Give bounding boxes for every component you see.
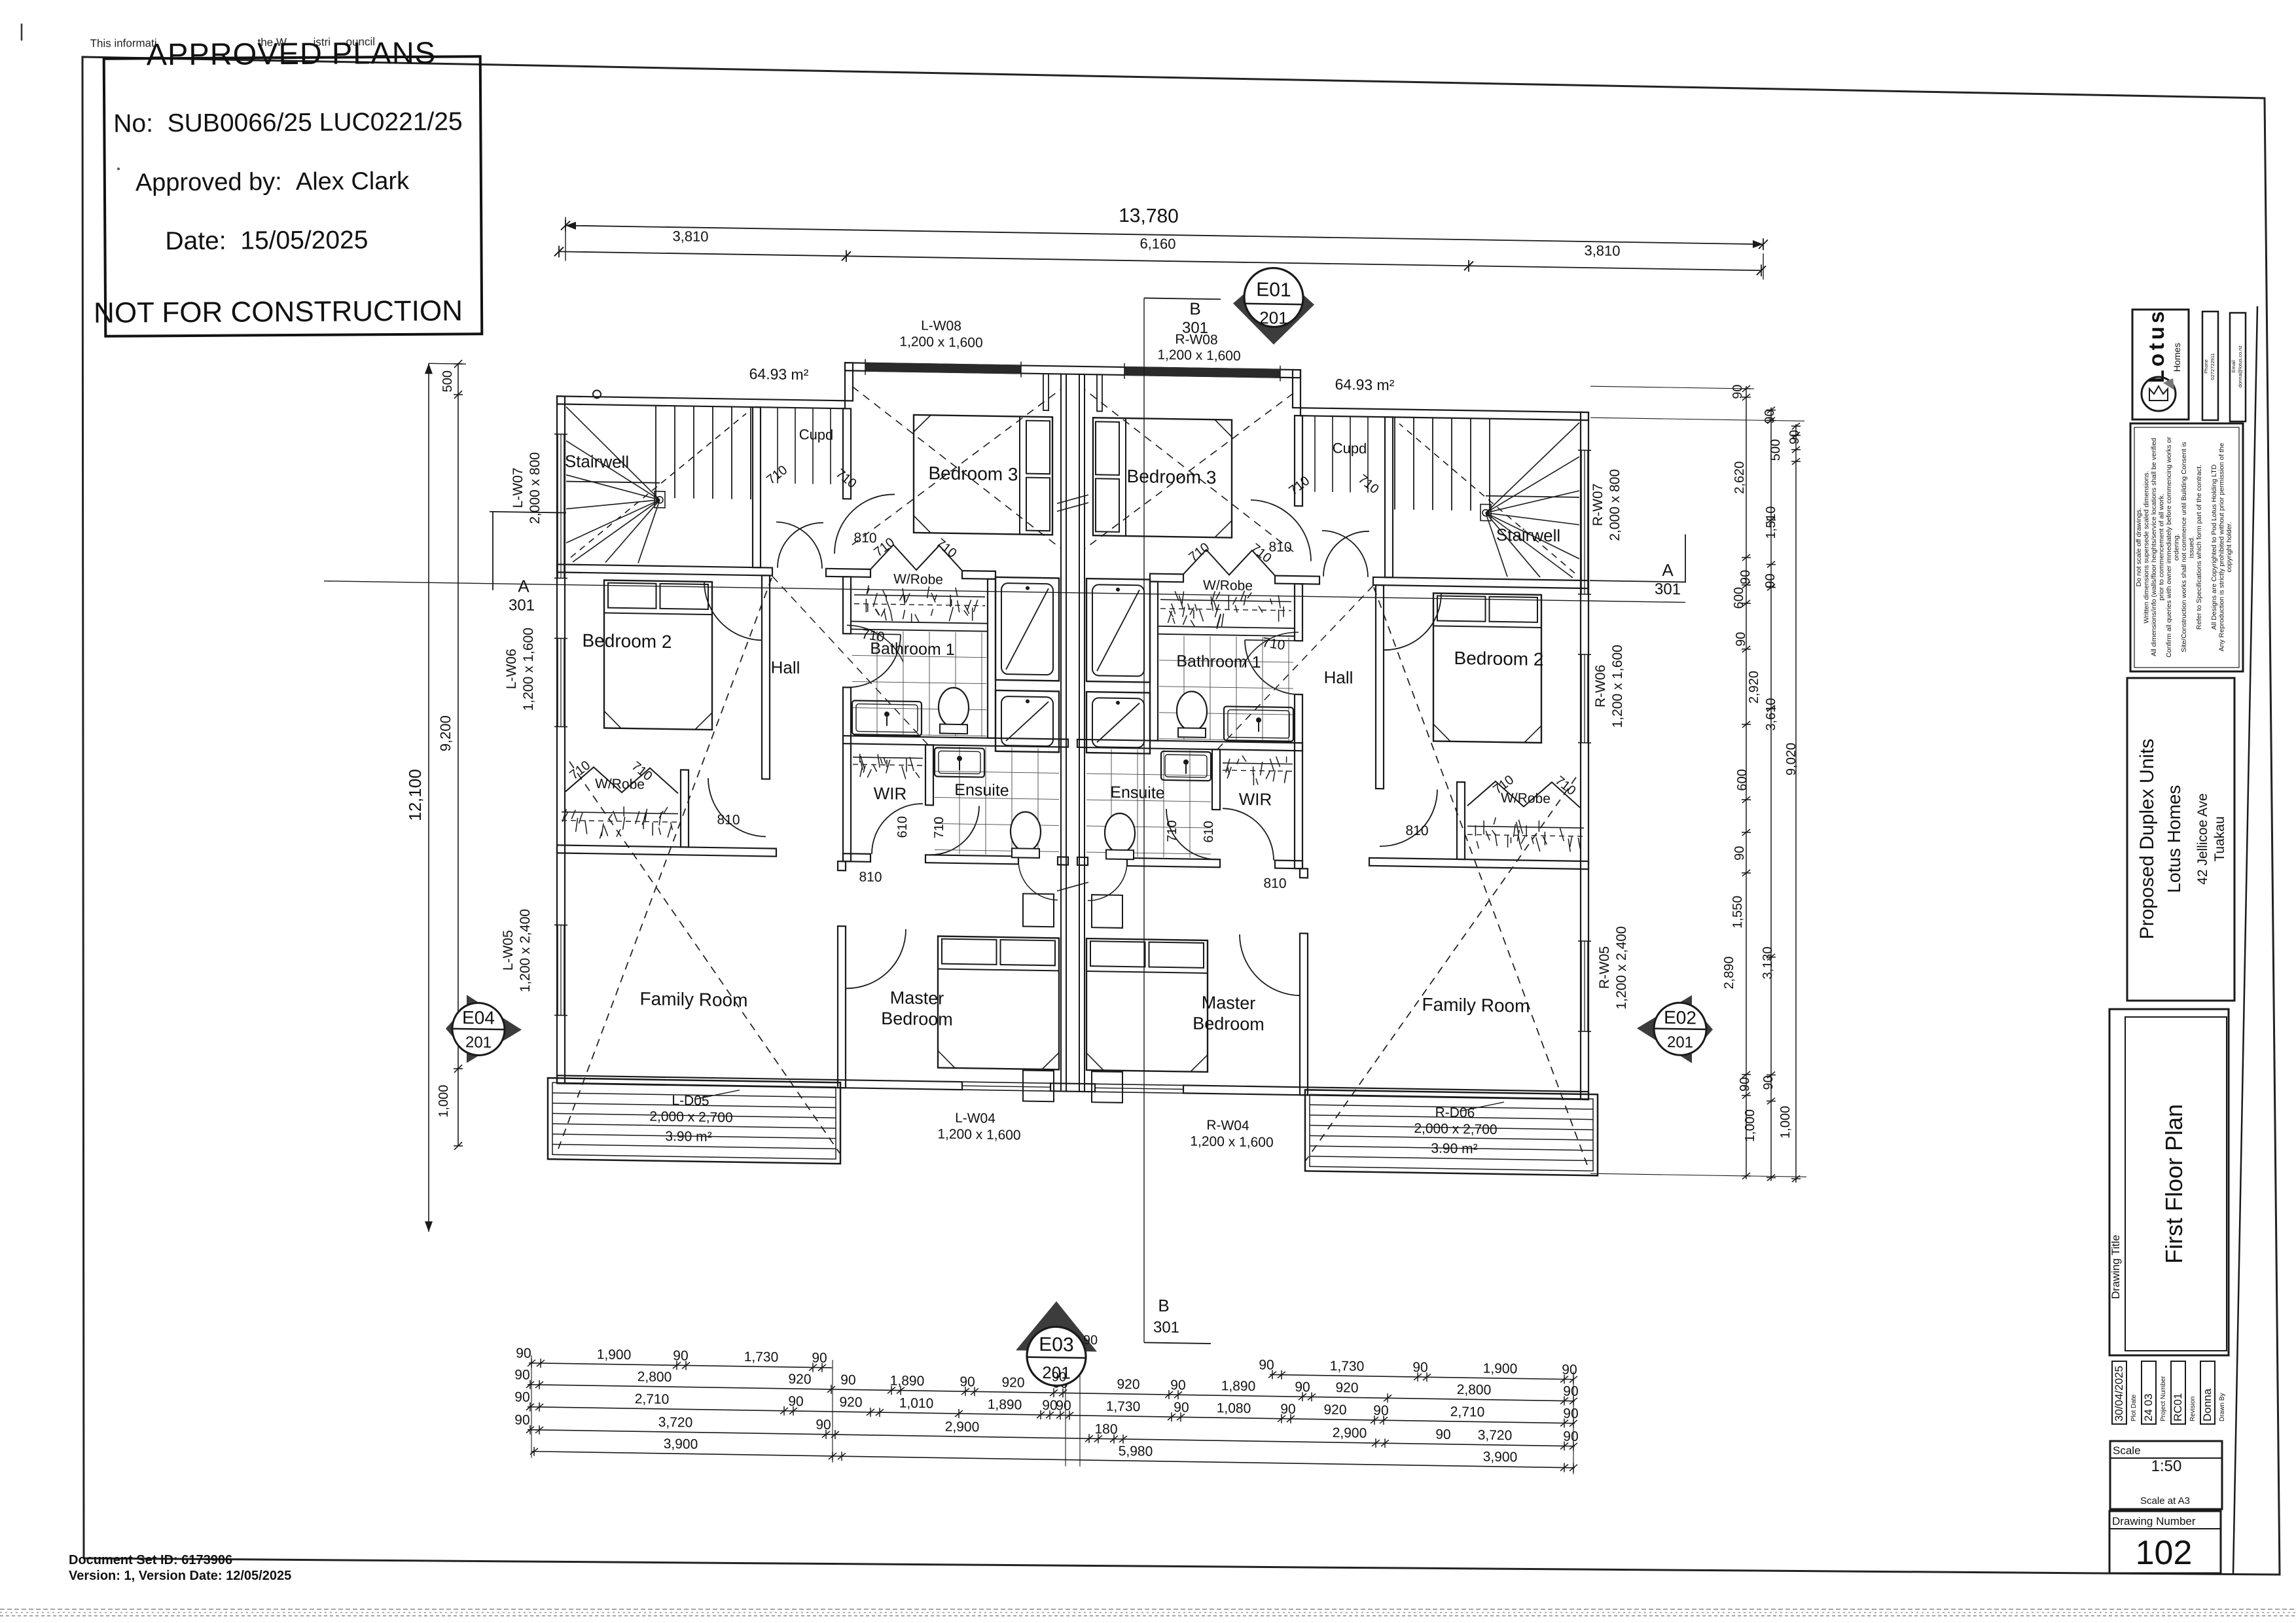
svg-text:All dimensions/info (walls/flo: All dimensions/info (walls/floor heights… <box>2150 438 2158 656</box>
svg-text:Bedroom: Bedroom <box>1193 1014 1265 1035</box>
svg-text:3,810: 3,810 <box>1584 242 1620 259</box>
svg-text:W/Robe: W/Robe <box>1501 791 1551 806</box>
svg-text:12,100: 12,100 <box>405 769 425 821</box>
svg-text:L-W06: L-W06 <box>504 649 519 689</box>
svg-text:90: 90 <box>516 1346 531 1361</box>
svg-text:90: 90 <box>1412 1360 1427 1375</box>
svg-text:1,730: 1,730 <box>744 1349 779 1365</box>
svg-text:301: 301 <box>1153 1319 1179 1337</box>
svg-text:90: 90 <box>1083 1333 1098 1347</box>
svg-text:No: SUB0066/25 LUC0221/25: No: SUB0066/25 LUC0221/25 <box>113 107 463 137</box>
svg-text:L-W05: L-W05 <box>501 930 516 971</box>
svg-text:90: 90 <box>960 1374 975 1389</box>
svg-text:2,000 x 800: 2,000 x 800 <box>1607 469 1623 541</box>
svg-text:2,890: 2,890 <box>1722 956 1736 989</box>
svg-text:Phone: Phone <box>2203 359 2209 374</box>
svg-text:42 Jellicoe Ave: 42 Jellicoe Ave <box>2195 793 2210 885</box>
svg-text:B: B <box>1158 1296 1169 1315</box>
svg-text:Hall: Hall <box>771 657 800 677</box>
svg-text:9,200: 9,200 <box>437 715 454 751</box>
svg-text:90: 90 <box>788 1394 803 1409</box>
svg-text:Confirm all queries with owner: Confirm all queries with owner immediate… <box>2165 437 2173 658</box>
svg-text:1,200 x 1,600: 1,200 x 1,600 <box>1610 645 1625 728</box>
svg-text:Bedroom 3: Bedroom 3 <box>1127 466 1217 488</box>
svg-text:920: 920 <box>1323 1402 1346 1418</box>
svg-text:2,620: 2,620 <box>1732 461 1747 494</box>
svg-text:Document Set ID: 6173906: Document Set ID: 6173906 <box>69 1553 232 1567</box>
svg-text:3,900: 3,900 <box>1483 1450 1518 1465</box>
svg-text:90: 90 <box>1763 573 1778 588</box>
svg-text:Hall: Hall <box>1324 668 1354 688</box>
svg-text:Email: Email <box>2231 360 2236 372</box>
svg-text:90: 90 <box>816 1418 831 1433</box>
svg-text:3,810: 3,810 <box>672 228 708 245</box>
svg-text:90: 90 <box>1734 632 1748 647</box>
svg-text:R-W08: R-W08 <box>1175 332 1217 348</box>
svg-text:1,080: 1,080 <box>1217 1400 1251 1416</box>
svg-text:Cupd: Cupd <box>799 426 834 443</box>
svg-text:A: A <box>1662 560 1674 580</box>
svg-text:920: 920 <box>839 1395 862 1410</box>
svg-text:2,710: 2,710 <box>1450 1404 1485 1420</box>
svg-text:30/04/2025: 30/04/2025 <box>2113 1366 2125 1421</box>
svg-text:90: 90 <box>1280 1402 1295 1417</box>
svg-text:1,730: 1,730 <box>1330 1359 1365 1374</box>
svg-text:W/Robe: W/Robe <box>1203 578 1253 594</box>
svg-text:6,160: 6,160 <box>1139 235 1175 252</box>
svg-text:First Floor Plan: First Floor Plan <box>2161 1104 2187 1264</box>
svg-text:3,610: 3,610 <box>1764 698 1778 730</box>
svg-text:L-W04: L-W04 <box>955 1111 996 1126</box>
svg-text:WIR: WIR <box>874 783 907 804</box>
svg-text:1,000: 1,000 <box>1778 1106 1793 1139</box>
svg-text:3,130: 3,130 <box>1761 946 1775 979</box>
svg-text:Ensuite: Ensuite <box>1110 783 1164 802</box>
svg-text:ordering.: ordering. <box>2173 533 2181 560</box>
svg-text:issued.: issued. <box>2188 536 2196 558</box>
svg-text:Drawing Title: Drawing Title <box>2109 1235 2122 1299</box>
svg-text:Approved by: Alex Clark: Approved by: Alex Clark <box>135 168 410 197</box>
svg-text:90: 90 <box>1731 384 1745 399</box>
svg-text:90: 90 <box>1563 1383 1578 1399</box>
svg-text:1,510: 1,510 <box>1764 506 1778 539</box>
svg-text:1,200 x 2,400: 1,200 x 2,400 <box>1614 926 1629 1010</box>
svg-text:90: 90 <box>1435 1427 1450 1442</box>
svg-text:Version: 1, Version Date: 12/0: Version: 1, Version Date: 12/05/2025 <box>69 1569 291 1583</box>
svg-text:920: 920 <box>788 1372 811 1387</box>
svg-text:Bedroom 2: Bedroom 2 <box>583 630 672 652</box>
svg-text:Drawing Number: Drawing Number <box>2112 1515 2196 1527</box>
svg-text:3,720: 3,720 <box>658 1415 693 1431</box>
svg-text:R-W06: R-W06 <box>1593 665 1608 708</box>
svg-text:610: 610 <box>895 816 910 838</box>
svg-text:64.93 m²: 64.93 m² <box>749 365 809 383</box>
svg-text:2,000 x 2,700: 2,000 x 2,700 <box>649 1109 732 1126</box>
svg-text:710: 710 <box>1165 820 1179 842</box>
svg-text:E02: E02 <box>1664 1007 1696 1028</box>
svg-text:810: 810 <box>853 530 876 546</box>
svg-text:600: 600 <box>1735 769 1749 791</box>
svg-text:90: 90 <box>1787 430 1802 445</box>
svg-text:13,780: 13,780 <box>1119 205 1179 227</box>
svg-text:90: 90 <box>1563 1406 1578 1421</box>
svg-text:1,200 x 1,600: 1,200 x 1,600 <box>937 1126 1020 1143</box>
svg-text:90: 90 <box>1563 1429 1578 1444</box>
svg-text:Master: Master <box>890 988 944 1008</box>
svg-text:APPROVED PLANS: APPROVED PLANS <box>147 35 437 72</box>
svg-text:All Designs are Copyrighted to: All Designs are Copyrighted to Pod Lotus… <box>2210 464 2218 630</box>
svg-text:920: 920 <box>1001 1375 1024 1391</box>
svg-text:Lotus Homes: Lotus Homes <box>2164 785 2184 893</box>
svg-text:Proposed Duplex Units: Proposed Duplex Units <box>2136 739 2158 940</box>
svg-text:Donna: Donna <box>2201 1388 2214 1421</box>
svg-text:Refer to Specifications which: Refer to Specifications which form part … <box>2195 465 2203 630</box>
svg-text:2,800: 2,800 <box>637 1369 672 1385</box>
svg-text:Stairwell: Stairwell <box>565 452 629 473</box>
svg-text:301: 301 <box>509 596 535 615</box>
svg-text:201: 201 <box>465 1033 492 1052</box>
svg-text:90: 90 <box>1763 409 1777 424</box>
svg-text:A: A <box>518 576 529 596</box>
svg-text:1,010: 1,010 <box>899 1396 934 1412</box>
svg-text:1,200 x 2,400: 1,200 x 2,400 <box>518 909 533 993</box>
svg-text:90: 90 <box>812 1350 827 1365</box>
svg-text:2,710: 2,710 <box>635 1391 670 1407</box>
svg-text:Family Room: Family Room <box>640 988 748 1010</box>
svg-text:B: B <box>1189 299 1200 319</box>
svg-text:1,200 x 1,600: 1,200 x 1,600 <box>521 628 536 711</box>
svg-text:90: 90 <box>1056 1398 1071 1413</box>
svg-text:500: 500 <box>1768 439 1783 461</box>
svg-text:2,000 x 800: 2,000 x 800 <box>528 452 543 524</box>
svg-text:3,900: 3,900 <box>664 1436 698 1452</box>
svg-text:R-W07: R-W07 <box>1590 483 1605 526</box>
svg-text:E01: E01 <box>1256 279 1291 301</box>
svg-text:9,020: 9,020 <box>1784 743 1799 776</box>
svg-text:prior to commencement of all w: prior to commencement of all work. <box>2158 493 2166 600</box>
svg-text:3.90 m²: 3.90 m² <box>665 1129 711 1145</box>
svg-text:500: 500 <box>440 370 455 393</box>
svg-text:1:50: 1:50 <box>2151 1457 2182 1475</box>
svg-text:1,200 x 1,600: 1,200 x 1,600 <box>1190 1134 1273 1150</box>
svg-text:copyright holder.: copyright holder. <box>2225 522 2233 572</box>
svg-text:90: 90 <box>840 1372 855 1387</box>
svg-text:0272722911: 0272722911 <box>2210 353 2215 380</box>
svg-text:Revision: Revision <box>2189 1397 2197 1421</box>
svg-text:810: 810 <box>1263 876 1286 891</box>
svg-text:W/Robe: W/Robe <box>595 776 645 792</box>
svg-text:810: 810 <box>717 812 740 828</box>
svg-text:Bedroom 3: Bedroom 3 <box>929 463 1018 484</box>
svg-text:Bathroom 1: Bathroom 1 <box>1176 652 1261 671</box>
svg-text:201: 201 <box>1259 308 1287 328</box>
svg-text:donna@lotus.co.nz: donna@lotus.co.nz <box>2237 346 2243 388</box>
svg-text:201: 201 <box>1667 1033 1693 1052</box>
svg-text:Scale: Scale <box>2113 1444 2141 1457</box>
svg-text:Ensuite: Ensuite <box>954 781 1009 800</box>
svg-text:Plot Date: Plot Date <box>2130 1394 2138 1421</box>
svg-text:Bedroom: Bedroom <box>881 1008 953 1029</box>
svg-text:Scale at A3: Scale at A3 <box>2140 1495 2190 1507</box>
svg-text:810: 810 <box>859 870 882 885</box>
svg-text:W/Robe: W/Robe <box>893 571 943 587</box>
svg-text:Any Reproduction is strictly p: Any Reproduction is strictly prohibited … <box>2218 443 2226 652</box>
svg-text:1,730: 1,730 <box>1106 1399 1141 1415</box>
svg-text:Cupd: Cupd <box>1333 440 1367 457</box>
svg-text:Date: 15/05/2025: Date: 15/05/2025 <box>165 226 368 255</box>
svg-text:WIR: WIR <box>1239 789 1272 810</box>
svg-text:Tuakau: Tuakau <box>2212 816 2227 861</box>
svg-text:90: 90 <box>1373 1403 1388 1418</box>
svg-text:1,200 x 1,600: 1,200 x 1,600 <box>1157 348 1240 364</box>
svg-text:3,720: 3,720 <box>1478 1427 1513 1443</box>
svg-text:E04: E04 <box>462 1007 495 1028</box>
svg-text:90: 90 <box>1174 1400 1189 1415</box>
svg-text:R-W05: R-W05 <box>1597 946 1612 990</box>
svg-text:1,890: 1,890 <box>1221 1378 1256 1394</box>
svg-text:810: 810 <box>1405 823 1428 839</box>
svg-text:64.93 m²: 64.93 m² <box>1335 376 1395 393</box>
svg-text:NOT FOR CONSTRUCTION: NOT FOR CONSTRUCTION <box>94 294 463 329</box>
svg-text:920: 920 <box>1335 1380 1358 1396</box>
svg-text:1,200 x 1,600: 1,200 x 1,600 <box>899 334 982 351</box>
svg-text:Site/Construction works shall: Site/Construction works shall not commen… <box>2180 442 2188 652</box>
svg-text:1,550: 1,550 <box>1731 895 1745 928</box>
svg-text:90: 90 <box>1052 1370 1066 1384</box>
svg-text:Homes: Homes <box>2172 343 2182 372</box>
svg-text:301: 301 <box>1655 580 1681 599</box>
svg-text:5,980: 5,980 <box>1119 1444 1153 1459</box>
svg-text:90: 90 <box>1761 1075 1776 1090</box>
svg-text:90: 90 <box>514 1367 529 1382</box>
svg-text:920: 920 <box>1117 1377 1139 1393</box>
svg-text:710: 710 <box>932 817 946 839</box>
svg-text:1,890: 1,890 <box>890 1373 925 1389</box>
svg-text:Do not scale off drawings.: Do not scale off drawings. <box>2135 508 2143 587</box>
svg-text:L-D05: L-D05 <box>672 1093 709 1109</box>
svg-text:E03: E03 <box>1039 1334 1073 1356</box>
svg-text:Bedroom 2: Bedroom 2 <box>1454 648 1544 669</box>
svg-text:2,920: 2,920 <box>1747 671 1761 704</box>
svg-text:2,800: 2,800 <box>1457 1382 1492 1398</box>
svg-text:1,000: 1,000 <box>437 1084 451 1117</box>
svg-text:90: 90 <box>1732 846 1747 861</box>
svg-text:R-W04: R-W04 <box>1206 1118 1249 1133</box>
svg-text:Written dimensions supersede s: Written dimensions supersede scaled dime… <box>2143 471 2151 623</box>
svg-text:2,900: 2,900 <box>1333 1425 1367 1441</box>
svg-text:1,900: 1,900 <box>1483 1361 1518 1377</box>
svg-text:1,890: 1,890 <box>988 1397 1022 1413</box>
svg-text:Project Number: Project Number <box>2160 1376 2167 1421</box>
svg-text:2,900: 2,900 <box>945 1419 980 1435</box>
svg-text:90: 90 <box>1738 570 1753 585</box>
svg-text:R-D06: R-D06 <box>1435 1105 1475 1120</box>
svg-text:RC01: RC01 <box>2172 1393 2184 1421</box>
svg-text:90: 90 <box>1259 1357 1274 1372</box>
svg-text:2,000 x 2,700: 2,000 x 2,700 <box>1414 1121 1497 1137</box>
svg-text:90: 90 <box>1738 1077 1752 1092</box>
svg-text:Stairwell: Stairwell <box>1496 525 1560 546</box>
svg-text:600: 600 <box>1732 587 1746 609</box>
svg-text:3.90 m²: 3.90 m² <box>1431 1141 1477 1156</box>
svg-text:Family Room: Family Room <box>1422 994 1530 1016</box>
svg-text:Drawn By: Drawn By <box>2219 1393 2226 1421</box>
svg-text:1,000: 1,000 <box>1743 1109 1757 1142</box>
svg-text:1,900: 1,900 <box>597 1347 632 1363</box>
svg-text:610: 610 <box>1202 821 1216 843</box>
svg-text:Master: Master <box>1202 993 1256 1013</box>
svg-text:90: 90 <box>514 1389 529 1404</box>
svg-text:90: 90 <box>514 1412 529 1427</box>
svg-text:102: 102 <box>2136 1534 2193 1572</box>
svg-text:24 03: 24 03 <box>2142 1393 2155 1421</box>
svg-text:Lotus: Lotus <box>2144 308 2168 383</box>
svg-text:L-W07: L-W07 <box>511 467 526 508</box>
svg-text:L-W08: L-W08 <box>921 318 961 334</box>
